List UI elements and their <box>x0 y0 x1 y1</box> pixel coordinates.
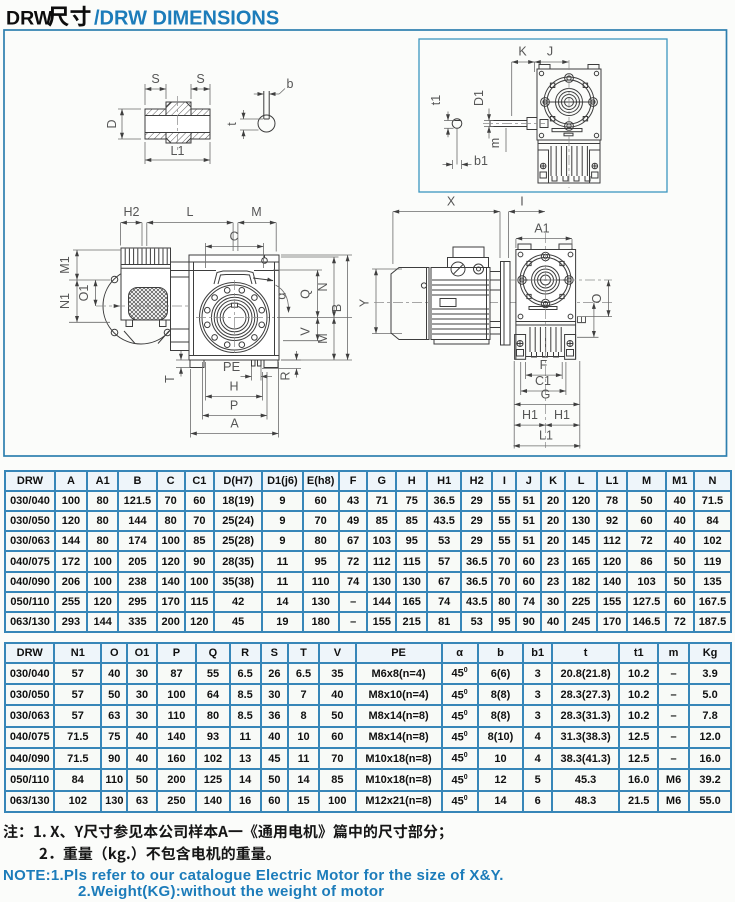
svg-text:L1: L1 <box>539 429 553 443</box>
svg-text:M: M <box>251 205 261 219</box>
svg-text:C: C <box>229 230 238 244</box>
svg-text:J: J <box>547 45 553 59</box>
svg-text:H2: H2 <box>124 205 140 219</box>
svg-text:L1: L1 <box>171 144 185 158</box>
svg-text:H1: H1 <box>522 408 538 422</box>
svg-text:O: O <box>590 293 604 303</box>
svg-text:T: T <box>163 375 177 383</box>
svg-text:X: X <box>447 195 456 209</box>
svg-text:Y: Y <box>358 298 372 307</box>
svg-text:M: M <box>316 333 330 343</box>
svg-text:R: R <box>279 371 293 380</box>
svg-text:N: N <box>316 282 330 291</box>
svg-text:t1: t1 <box>429 95 443 105</box>
svg-text:M1: M1 <box>58 256 72 273</box>
svg-text:m: m <box>488 138 502 148</box>
svg-text:O1: O1 <box>77 285 91 302</box>
svg-text:Q: Q <box>299 289 313 299</box>
svg-text:H1: H1 <box>554 408 570 422</box>
svg-text:α: α <box>275 292 289 299</box>
svg-text:B: B <box>330 304 344 312</box>
svg-text:N1: N1 <box>58 293 72 309</box>
svg-text:PE: PE <box>223 359 241 374</box>
svg-text:t: t <box>225 122 239 126</box>
svg-text:A: A <box>230 417 239 431</box>
svg-text:b1: b1 <box>474 154 488 168</box>
svg-text:V: V <box>299 327 313 336</box>
svg-text:F: F <box>540 358 548 372</box>
svg-text:L: L <box>187 205 194 219</box>
svg-text:D: D <box>105 119 119 128</box>
svg-text:H: H <box>229 380 238 394</box>
svg-text:S: S <box>151 72 159 86</box>
svg-text:P: P <box>230 399 238 413</box>
svg-text:K: K <box>518 45 527 59</box>
svg-text:C1: C1 <box>535 374 551 388</box>
svg-text:b: b <box>287 77 294 91</box>
svg-text:G: G <box>541 388 551 402</box>
svg-text:A1: A1 <box>534 222 549 236</box>
svg-text:I: I <box>520 195 523 209</box>
svg-text:S: S <box>196 72 204 86</box>
svg-text:D1: D1 <box>472 90 486 106</box>
svg-text:E: E <box>575 316 589 324</box>
